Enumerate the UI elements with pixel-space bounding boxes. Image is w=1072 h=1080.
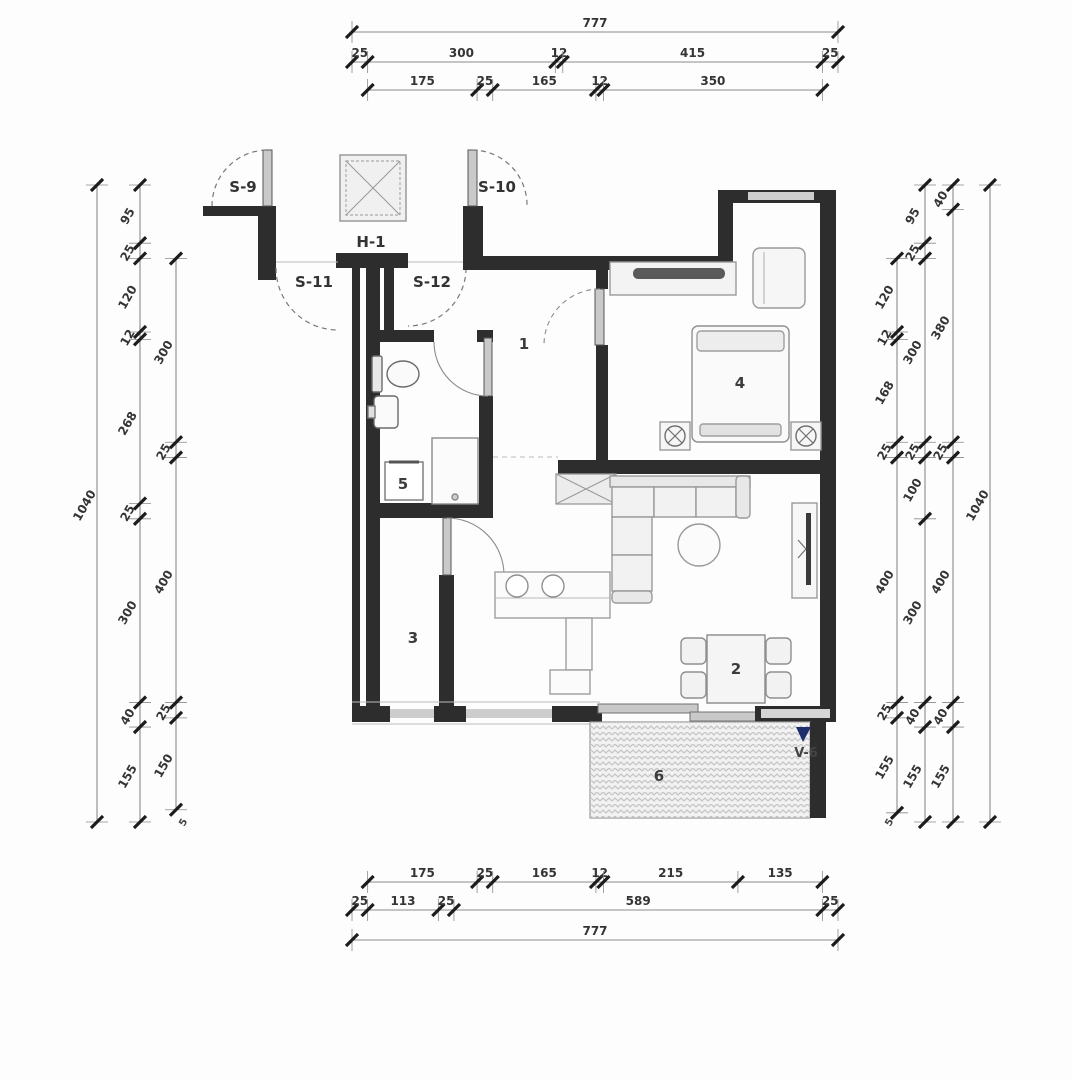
dim-value: 400 [872, 568, 897, 597]
bottom-wall-pier [434, 706, 466, 722]
sofa-chaise-cushion [612, 555, 652, 591]
terrace-right-wall [810, 722, 826, 818]
floor-plan-page: 1 2 3 4 5 6 S-9 S-10 S-11 S-12 H-1 V-6 5… [0, 0, 1072, 1080]
dim-value: 25 [902, 441, 922, 462]
dining-chair [766, 672, 791, 698]
kitchen-door-leaf [443, 518, 451, 575]
dim-value: 25 [117, 242, 137, 263]
dim-value: 300 [151, 338, 176, 367]
bedroom-partition-stub [596, 262, 608, 289]
dim-value: 400 [928, 568, 953, 597]
terrace-sliding-door-panel [598, 704, 698, 713]
floor-plan-canvas: 1 2 3 4 5 6 S-9 S-10 S-11 S-12 H-1 V-6 5… [0, 0, 1072, 1080]
right-outer-wall [820, 190, 836, 720]
dim-value: 120 [872, 283, 897, 312]
dim-value: 155 [872, 753, 897, 782]
dim-value: 268 [115, 409, 140, 438]
dim-value: 40 [117, 706, 137, 727]
tv-screen [806, 513, 811, 585]
bedroom-furniture [610, 248, 821, 450]
living-furniture [610, 476, 817, 703]
room-label-bedroom: 4 [735, 374, 745, 392]
dim-value: 155 [928, 762, 953, 791]
door-label-s9: S-9 [229, 178, 256, 196]
kitchen-window [390, 709, 434, 718]
sofa-back [610, 476, 750, 487]
dim-value: 95 [117, 205, 137, 226]
sofa-chaise-end [612, 591, 652, 603]
dim-value: 400 [151, 568, 176, 597]
extra-dim-mark-left: 5 [177, 817, 190, 829]
dim-value: 350 [700, 74, 725, 88]
bottom-wall-pier [552, 706, 602, 722]
room-label-living: 2 [731, 660, 741, 678]
door-s9-leaf [263, 150, 272, 206]
coffee-table [678, 524, 720, 566]
sink-tap [368, 406, 375, 418]
bottom-wall-pier [352, 706, 390, 722]
terrace [590, 722, 826, 818]
door-label-s12: S-12 [413, 273, 451, 291]
dim-value: 25 [477, 74, 494, 88]
dim-value: 300 [449, 46, 474, 60]
dim-value: 777 [582, 924, 607, 938]
dim-value: 25 [822, 894, 839, 908]
dim-value: 155 [115, 762, 140, 791]
sofa-armrest [736, 476, 750, 518]
bedroom-desk [753, 248, 805, 308]
dim-value: 25 [351, 894, 368, 908]
terrace-paving-hatch [590, 722, 810, 818]
bathroom-sink [374, 396, 398, 428]
dim-value: 135 [768, 866, 793, 880]
bed-foot-bar [700, 424, 781, 436]
sofa-chaise-cushion [612, 517, 652, 555]
kitchen-door-swing-arc [447, 518, 504, 575]
kitchen-counter-return [566, 618, 592, 670]
dim-value: 175 [410, 866, 435, 880]
bedroom-living-wall [558, 460, 836, 474]
dim-value: 175 [410, 74, 435, 88]
interior-doors [434, 289, 604, 575]
dim-value: 300 [115, 598, 140, 627]
dim-value: 120 [115, 283, 140, 312]
dim-value: 168 [872, 378, 897, 407]
bed-pillow [697, 331, 784, 351]
room-label-kitchen: 3 [408, 629, 418, 647]
dim-value: 25 [153, 701, 173, 722]
room-label-hall: 1 [519, 335, 529, 353]
room-label-terrace: 6 [654, 767, 664, 785]
door-label-s11: S-11 [295, 273, 333, 291]
sofa-cushion [654, 487, 696, 517]
bedroom-window [748, 192, 814, 200]
door-s9-jamb-wall [258, 206, 276, 280]
bathroom-fixtures [368, 356, 478, 504]
kitchen-counter [495, 572, 610, 694]
bathroom-right-wall [479, 396, 493, 506]
dim-value: 25 [902, 242, 922, 263]
dim-value: 25 [438, 894, 455, 908]
entry-chase-wall [384, 268, 394, 332]
dim-value: 155 [900, 762, 925, 791]
dim-value: 25 [874, 441, 894, 462]
dining-chair [681, 672, 706, 698]
dim-value: 25 [930, 441, 950, 462]
bathroom-door-swing-arc [434, 342, 488, 396]
sofa-cushion [612, 487, 654, 517]
kitchen-partition-wall [439, 575, 454, 706]
toilet-tank [372, 356, 382, 392]
terrace-marker-label-v6: V-6 [794, 746, 818, 761]
dim-value: 100 [900, 476, 925, 505]
kitchen-counter-base [550, 670, 590, 694]
left-outer-wall-face [352, 262, 360, 720]
bottom-wall-inner-band [761, 709, 830, 718]
door-s10-leaf [468, 150, 477, 206]
dim-value: 25 [477, 866, 494, 880]
dim-value: 165 [532, 74, 557, 88]
bedroom-door-swing-arc [544, 289, 600, 345]
dim-value: 415 [680, 46, 705, 60]
dim-value: 150 [151, 751, 176, 780]
room-label-bathroom: 5 [398, 475, 408, 493]
bathroom-door-leaf [484, 338, 492, 396]
dining-chair [681, 638, 706, 664]
bathroom-bottom-wall [368, 503, 493, 518]
dim-value: 300 [900, 338, 925, 367]
living-window [466, 709, 552, 718]
toilet-bowl [387, 361, 419, 387]
dim-value: 380 [928, 314, 953, 343]
dim-value: 215 [658, 866, 683, 880]
dim-value: 95 [902, 205, 922, 226]
bathroom-top-wall [368, 330, 434, 342]
kitchen-sink-basin [542, 575, 564, 597]
shower-drain [452, 494, 458, 500]
dining-chair [766, 638, 791, 664]
dim-value: 25 [153, 441, 173, 462]
door-label-s10: S-10 [478, 178, 516, 196]
sofa-cushion [696, 487, 736, 517]
dim-value: 25 [874, 701, 894, 722]
dim-value: 1040 [963, 488, 992, 524]
dim-value: 1040 [70, 488, 99, 524]
dim-value: 40 [930, 189, 950, 210]
landing-wall-stub [203, 206, 261, 216]
bedroom-door-leaf [595, 289, 604, 345]
dimension-lines: 7772530012415251752516512350175251651221… [70, 16, 1001, 951]
dim-value: 40 [930, 706, 950, 727]
dim-value: 40 [902, 706, 922, 727]
extra-dim-mark-right: 5 [883, 817, 896, 829]
dim-value: 25 [117, 502, 137, 523]
bedroom-partition-wall [596, 345, 608, 460]
dim-value: 300 [900, 598, 925, 627]
kitchen-sink-basin [506, 575, 528, 597]
dim-value: 777 [582, 16, 607, 30]
column-label-h1: H-1 [356, 233, 385, 251]
dim-value: 165 [532, 866, 557, 880]
wardrobe-sliding-door [633, 268, 725, 279]
dim-value: 25 [822, 46, 839, 60]
dim-value: 113 [390, 894, 415, 908]
dim-value: 589 [626, 894, 651, 908]
dim-value: 25 [351, 46, 368, 60]
